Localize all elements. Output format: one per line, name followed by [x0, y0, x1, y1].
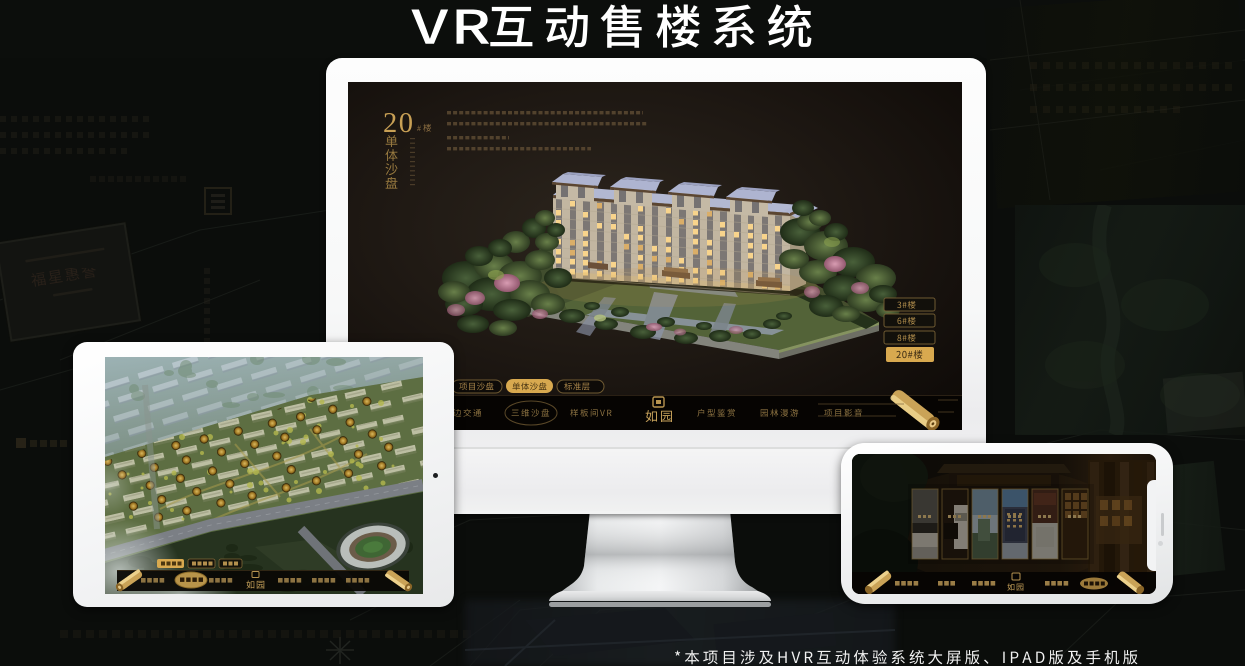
- svg-text:#: #: [417, 124, 421, 133]
- svg-text:20: 20: [383, 108, 415, 139]
